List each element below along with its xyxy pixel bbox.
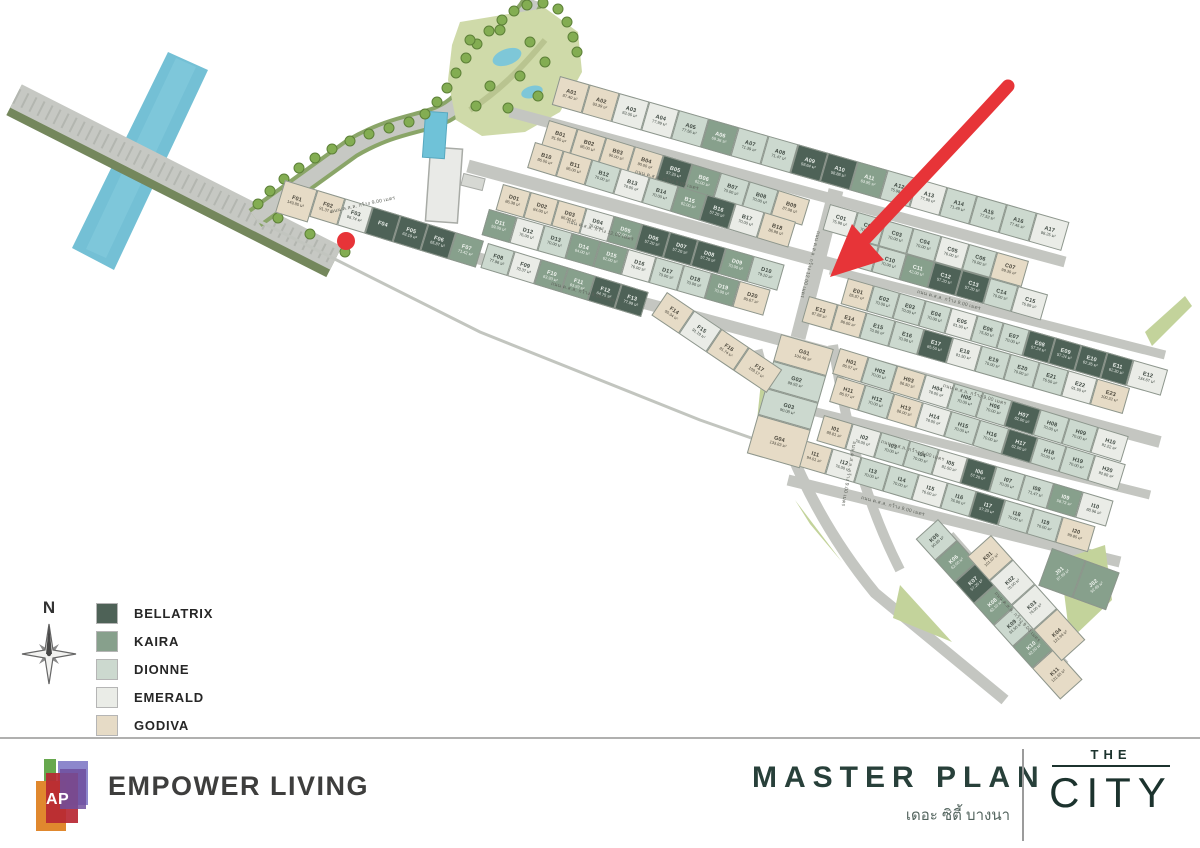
lot-row-F1: F01149.95 ม²F0291.37 ม²F0386.74 ม²F04F05… xyxy=(275,180,484,273)
brand-name: EMPOWER LIVING xyxy=(108,771,369,802)
footer-divider xyxy=(1022,749,1024,841)
legend-swatch-bellatrix xyxy=(96,603,118,624)
legend-label: DIONNE xyxy=(134,662,189,677)
legend-swatch-kaira xyxy=(96,631,118,652)
lot-area: 70.00 ม² xyxy=(863,473,879,482)
lot-area: 76.00 ม² xyxy=(950,498,966,507)
ap-logo: AP xyxy=(36,759,94,833)
lot-C15: C1576.89 ม² xyxy=(1011,286,1048,320)
lot-F13: F1377.99 ม² xyxy=(614,284,648,317)
lot-A17: A1788.25 ม² xyxy=(1029,213,1070,251)
legend-item-emerald: EMERALD xyxy=(96,687,213,708)
compass: N xyxy=(16,598,82,693)
lot-F07: F0771.42 ม² xyxy=(448,232,484,267)
footer: AP EMPOWER LIVING MASTER PLAN เดอะ ซิตี้… xyxy=(0,737,1200,848)
legend-item-dionne: DIONNE xyxy=(96,659,213,680)
legend-swatch-godiva xyxy=(96,715,118,736)
lot-area: 70.00 ม² xyxy=(1036,524,1052,533)
project-logo-city: CITY xyxy=(1032,769,1190,817)
lot-area: 99.85 ม² xyxy=(1067,533,1083,542)
lot-area: 88.81 ม² xyxy=(826,431,842,440)
lot-area: 70.00 ม² xyxy=(1007,516,1023,525)
compass-icon xyxy=(16,618,82,688)
plan-subtitle-thai: เดอะ ซิตี้ บางนา xyxy=(752,803,1010,827)
legend-item-godiva: GODIVA xyxy=(96,715,213,736)
lot-area: 81.50 ม² xyxy=(941,465,957,474)
ap-logo-text: AP xyxy=(46,791,69,809)
legend-label: KAIRA xyxy=(134,634,179,649)
lot-area: 71.47 ม² xyxy=(1027,491,1043,500)
legend-swatch-emerald xyxy=(96,687,118,708)
legend-label: GODIVA xyxy=(134,718,189,733)
lot-area: 57.20 ม² xyxy=(978,507,994,516)
legend-label: BELLATRIX xyxy=(134,606,213,621)
lot-area: 76.00 ม² xyxy=(921,490,937,499)
lot-area: 70.00 ม² xyxy=(998,482,1014,491)
legend-swatch-dionne xyxy=(96,659,118,680)
legend-label: EMERALD xyxy=(134,690,204,705)
plan-title: MASTER PLAN xyxy=(752,761,1046,795)
lot-area: 70.00 ม² xyxy=(892,481,908,490)
project-logo: THE CITY xyxy=(1032,747,1190,817)
legend-item-bellatrix: BELLATRIX xyxy=(96,603,213,624)
north-label: N xyxy=(16,598,82,618)
lot-area: 58.73 ม² xyxy=(1056,499,1072,508)
legend-item-kaira: KAIRA xyxy=(96,631,213,652)
project-logo-the: THE xyxy=(1052,747,1170,767)
lot-id: F04 xyxy=(377,220,388,229)
lot-area: 94.01 ม² xyxy=(806,456,822,465)
master-plan-page: A0187.40 ม²A0293.39 ม²A0383.05 ม²A0477.9… xyxy=(0,0,1200,848)
lot-area: 57.20 ม² xyxy=(970,473,986,482)
legend: BELLATRIXKAIRADIONNEEMERALDGODIVA xyxy=(96,603,213,743)
lot-area: 88.96 ม² xyxy=(1086,508,1102,517)
lot-E12: E12134.67 ม² xyxy=(1126,360,1168,396)
